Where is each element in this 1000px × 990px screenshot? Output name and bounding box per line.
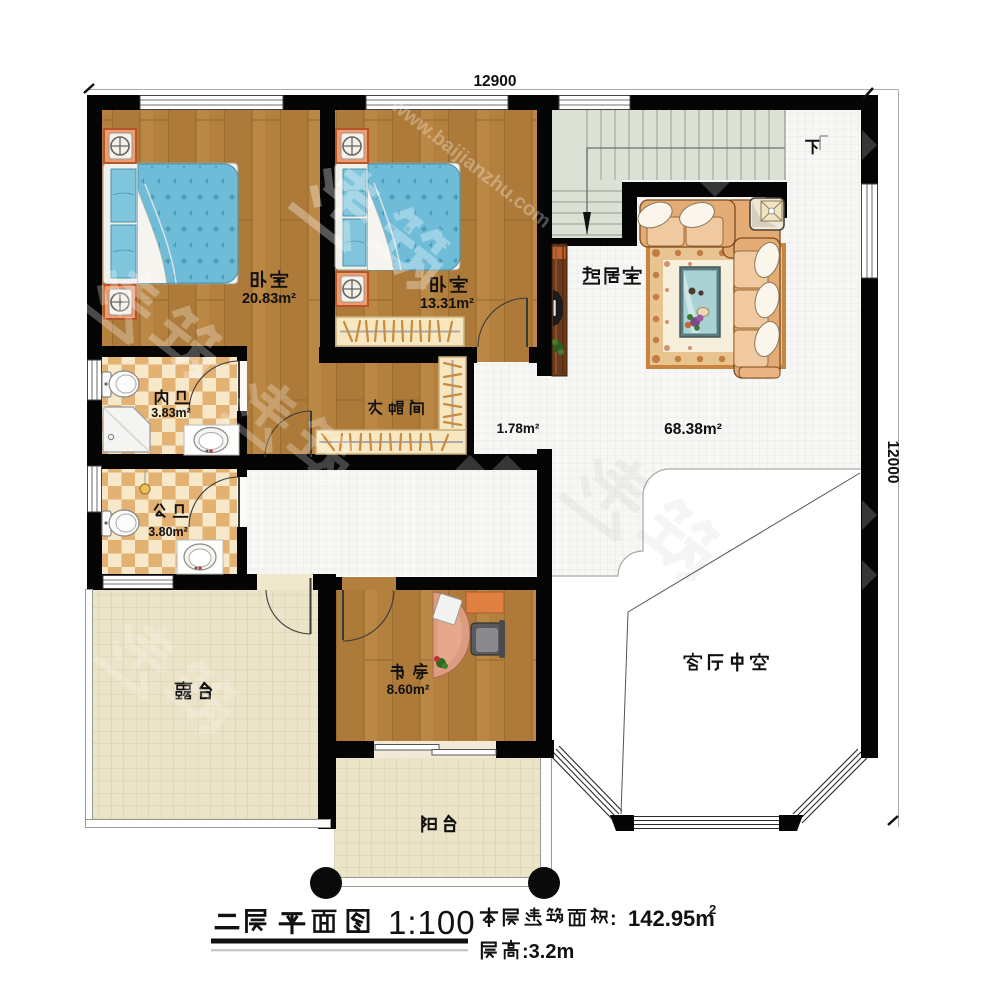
- svg-text:1.78m²: 1.78m²: [497, 421, 540, 436]
- svg-text:142.95m: 142.95m: [628, 906, 715, 931]
- svg-text:20.83m²: 20.83m²: [242, 291, 296, 307]
- svg-text:13.31m²: 13.31m²: [420, 296, 474, 312]
- svg-text:68.38m²: 68.38m²: [664, 421, 722, 438]
- svg-text:12000: 12000: [884, 440, 901, 483]
- svg-text:1:100: 1:100: [388, 904, 476, 941]
- svg-text:3.80m²: 3.80m²: [148, 525, 188, 539]
- svg-text:3.83m²: 3.83m²: [151, 406, 191, 420]
- svg-text:12900: 12900: [473, 73, 516, 90]
- svg-text::: :: [610, 908, 617, 930]
- svg-text::3.2m: :3.2m: [522, 941, 574, 963]
- svg-text:8.60m²: 8.60m²: [387, 682, 430, 697]
- svg-text:2: 2: [709, 902, 716, 917]
